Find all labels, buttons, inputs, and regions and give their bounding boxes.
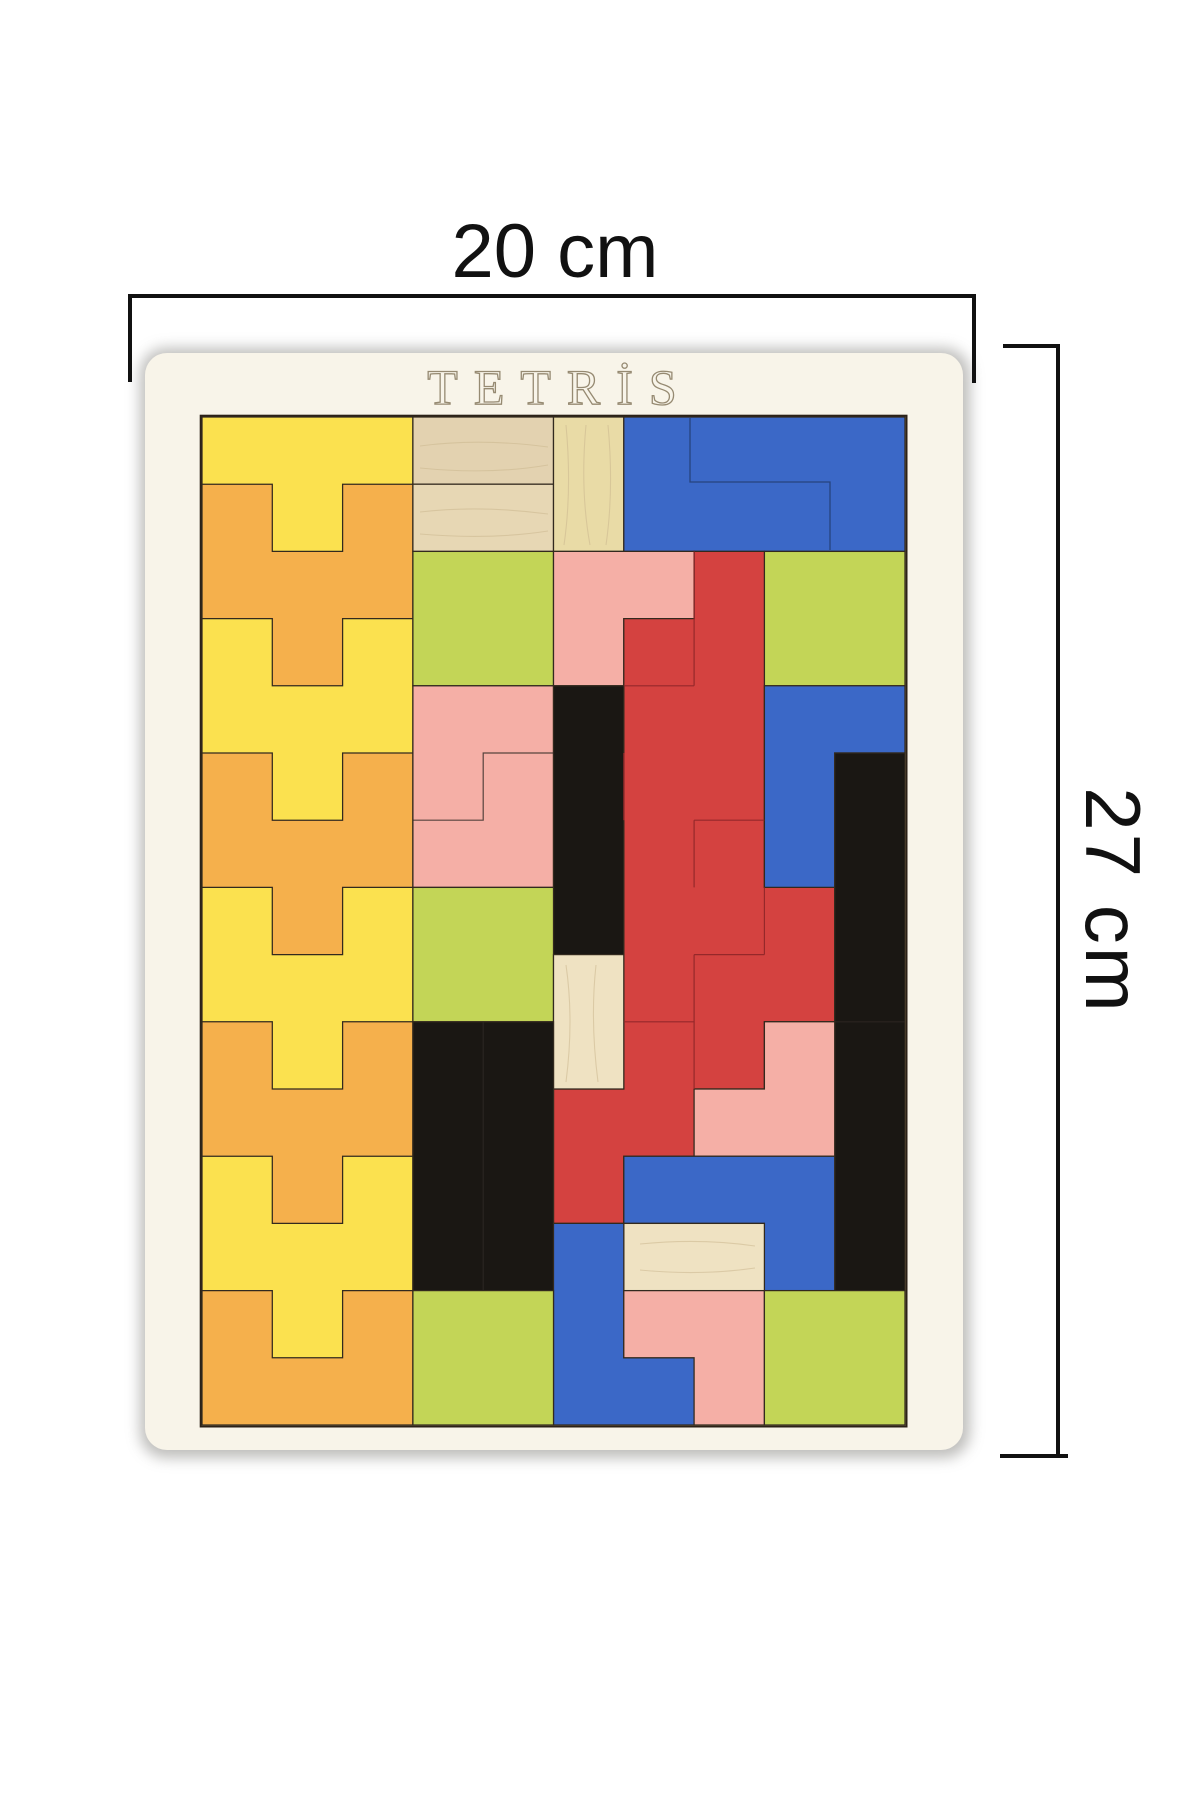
svg-text:27 cm: 27 cm: [1069, 787, 1157, 1014]
svg-text:TETRİS: TETRİS: [427, 359, 692, 415]
svg-text:20 cm: 20 cm: [452, 209, 659, 294]
